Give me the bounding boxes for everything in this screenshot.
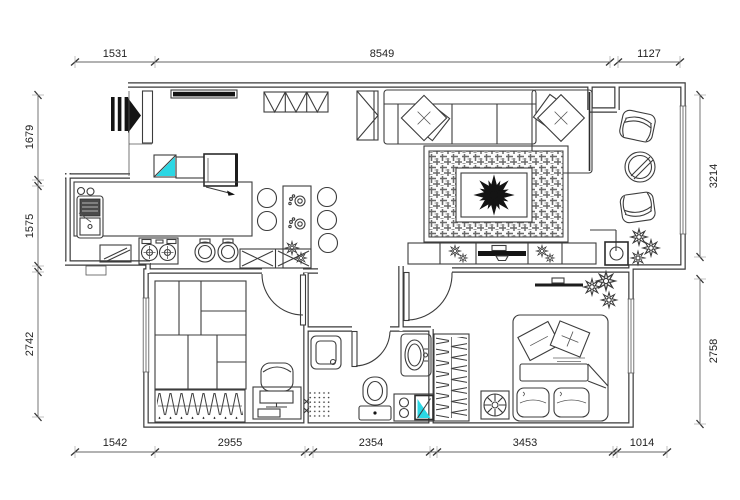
dimension-top: 1531 8549 1127 — [71, 48, 684, 68]
electric-fan — [481, 391, 509, 419]
coat-rack — [171, 90, 237, 98]
bed-pillow — [517, 388, 589, 417]
floor-plan-page: 1531 8549 1127 1542 2955 2354 3453 1014 … — [0, 0, 740, 500]
tv-console — [408, 243, 596, 264]
flower-pot — [643, 240, 659, 256]
bed-blanket — [520, 364, 608, 388]
laundry-sink — [400, 398, 409, 407]
toilet — [359, 377, 391, 420]
dim-bottom-5: 1014 — [630, 437, 654, 449]
dim-top-1: 1531 — [103, 48, 127, 60]
bedroom2-window-icon — [143, 298, 150, 372]
balcony — [605, 109, 659, 265]
storage-bench — [176, 157, 204, 178]
kitchen-sink — [77, 188, 103, 239]
master-wardrobe — [434, 334, 469, 421]
laundry-unit — [394, 394, 434, 421]
dimension-right: 3214 2758 — [694, 91, 720, 428]
dim-left-1: 1679 — [24, 125, 36, 149]
dim-left-3: 2742 — [24, 332, 36, 356]
washbasin — [401, 334, 431, 376]
entry-arrow-icon — [111, 97, 141, 133]
bar-cups — [289, 195, 305, 229]
flower-pot — [631, 229, 647, 245]
double-bed — [513, 315, 608, 421]
bed-label-lines — [553, 358, 585, 362]
sofa-pillow — [533, 94, 584, 141]
master-bedroom-window-icon — [628, 299, 635, 373]
wall-tv — [535, 278, 583, 285]
master-bedroom — [404, 272, 617, 421]
dim-bottom-2: 2955 — [218, 437, 242, 449]
dim-left-2: 1575 — [24, 214, 36, 238]
dim-bottom-1: 1542 — [103, 437, 127, 449]
entry-door — [143, 91, 153, 143]
balcony-window-icon — [680, 106, 687, 234]
cutting-board — [100, 245, 131, 262]
storage-box — [204, 154, 237, 196]
dim-top-3: 1127 — [637, 48, 661, 60]
tatami-cabinet — [155, 281, 246, 389]
tall-cabinet — [357, 91, 378, 140]
exterior-sill — [86, 266, 106, 275]
flower-pot — [597, 272, 615, 290]
bed-cushion — [518, 321, 590, 361]
bedroom2-wardrobe — [155, 390, 245, 422]
dim-right-2: 2758 — [708, 339, 720, 363]
bedroom2 — [155, 274, 306, 422]
dim-bottom-3: 2354 — [359, 437, 383, 449]
desk — [253, 387, 301, 419]
balcony-round-table — [625, 152, 655, 182]
shoe-cabinet-cyan — [154, 155, 176, 177]
shower-box — [311, 336, 341, 369]
cook-pots — [195, 239, 238, 262]
coffee-table — [456, 168, 532, 222]
v-cabinet — [264, 92, 328, 112]
balcony-armchair — [618, 109, 656, 143]
dimension-bottom: 1542 2955 2354 3453 1014 — [71, 437, 671, 458]
flower-pot — [286, 242, 299, 255]
master-door — [404, 273, 452, 321]
entry — [111, 90, 378, 196]
kitchen — [74, 182, 338, 268]
dimension-left: 1679 1575 2742 — [24, 91, 44, 421]
bedroom2-door — [262, 274, 306, 325]
tv — [478, 251, 526, 256]
cross-cabinet — [240, 249, 311, 268]
flower-pot — [601, 292, 616, 307]
balcony-armchair — [619, 191, 656, 223]
bathroom — [304, 332, 434, 422]
sofa-pillow — [401, 95, 449, 140]
floor-plan-drawing: 1531 8549 1127 1542 2955 2354 3453 1014 … — [0, 0, 740, 500]
flower-pot — [631, 251, 645, 265]
dim-right-1: 3214 — [708, 164, 720, 188]
dim-bottom-4: 3453 — [513, 437, 537, 449]
gas-stove — [139, 238, 178, 264]
living-room — [384, 90, 616, 264]
bathroom-door — [352, 332, 390, 367]
dim-top-2: 8549 — [370, 48, 394, 60]
